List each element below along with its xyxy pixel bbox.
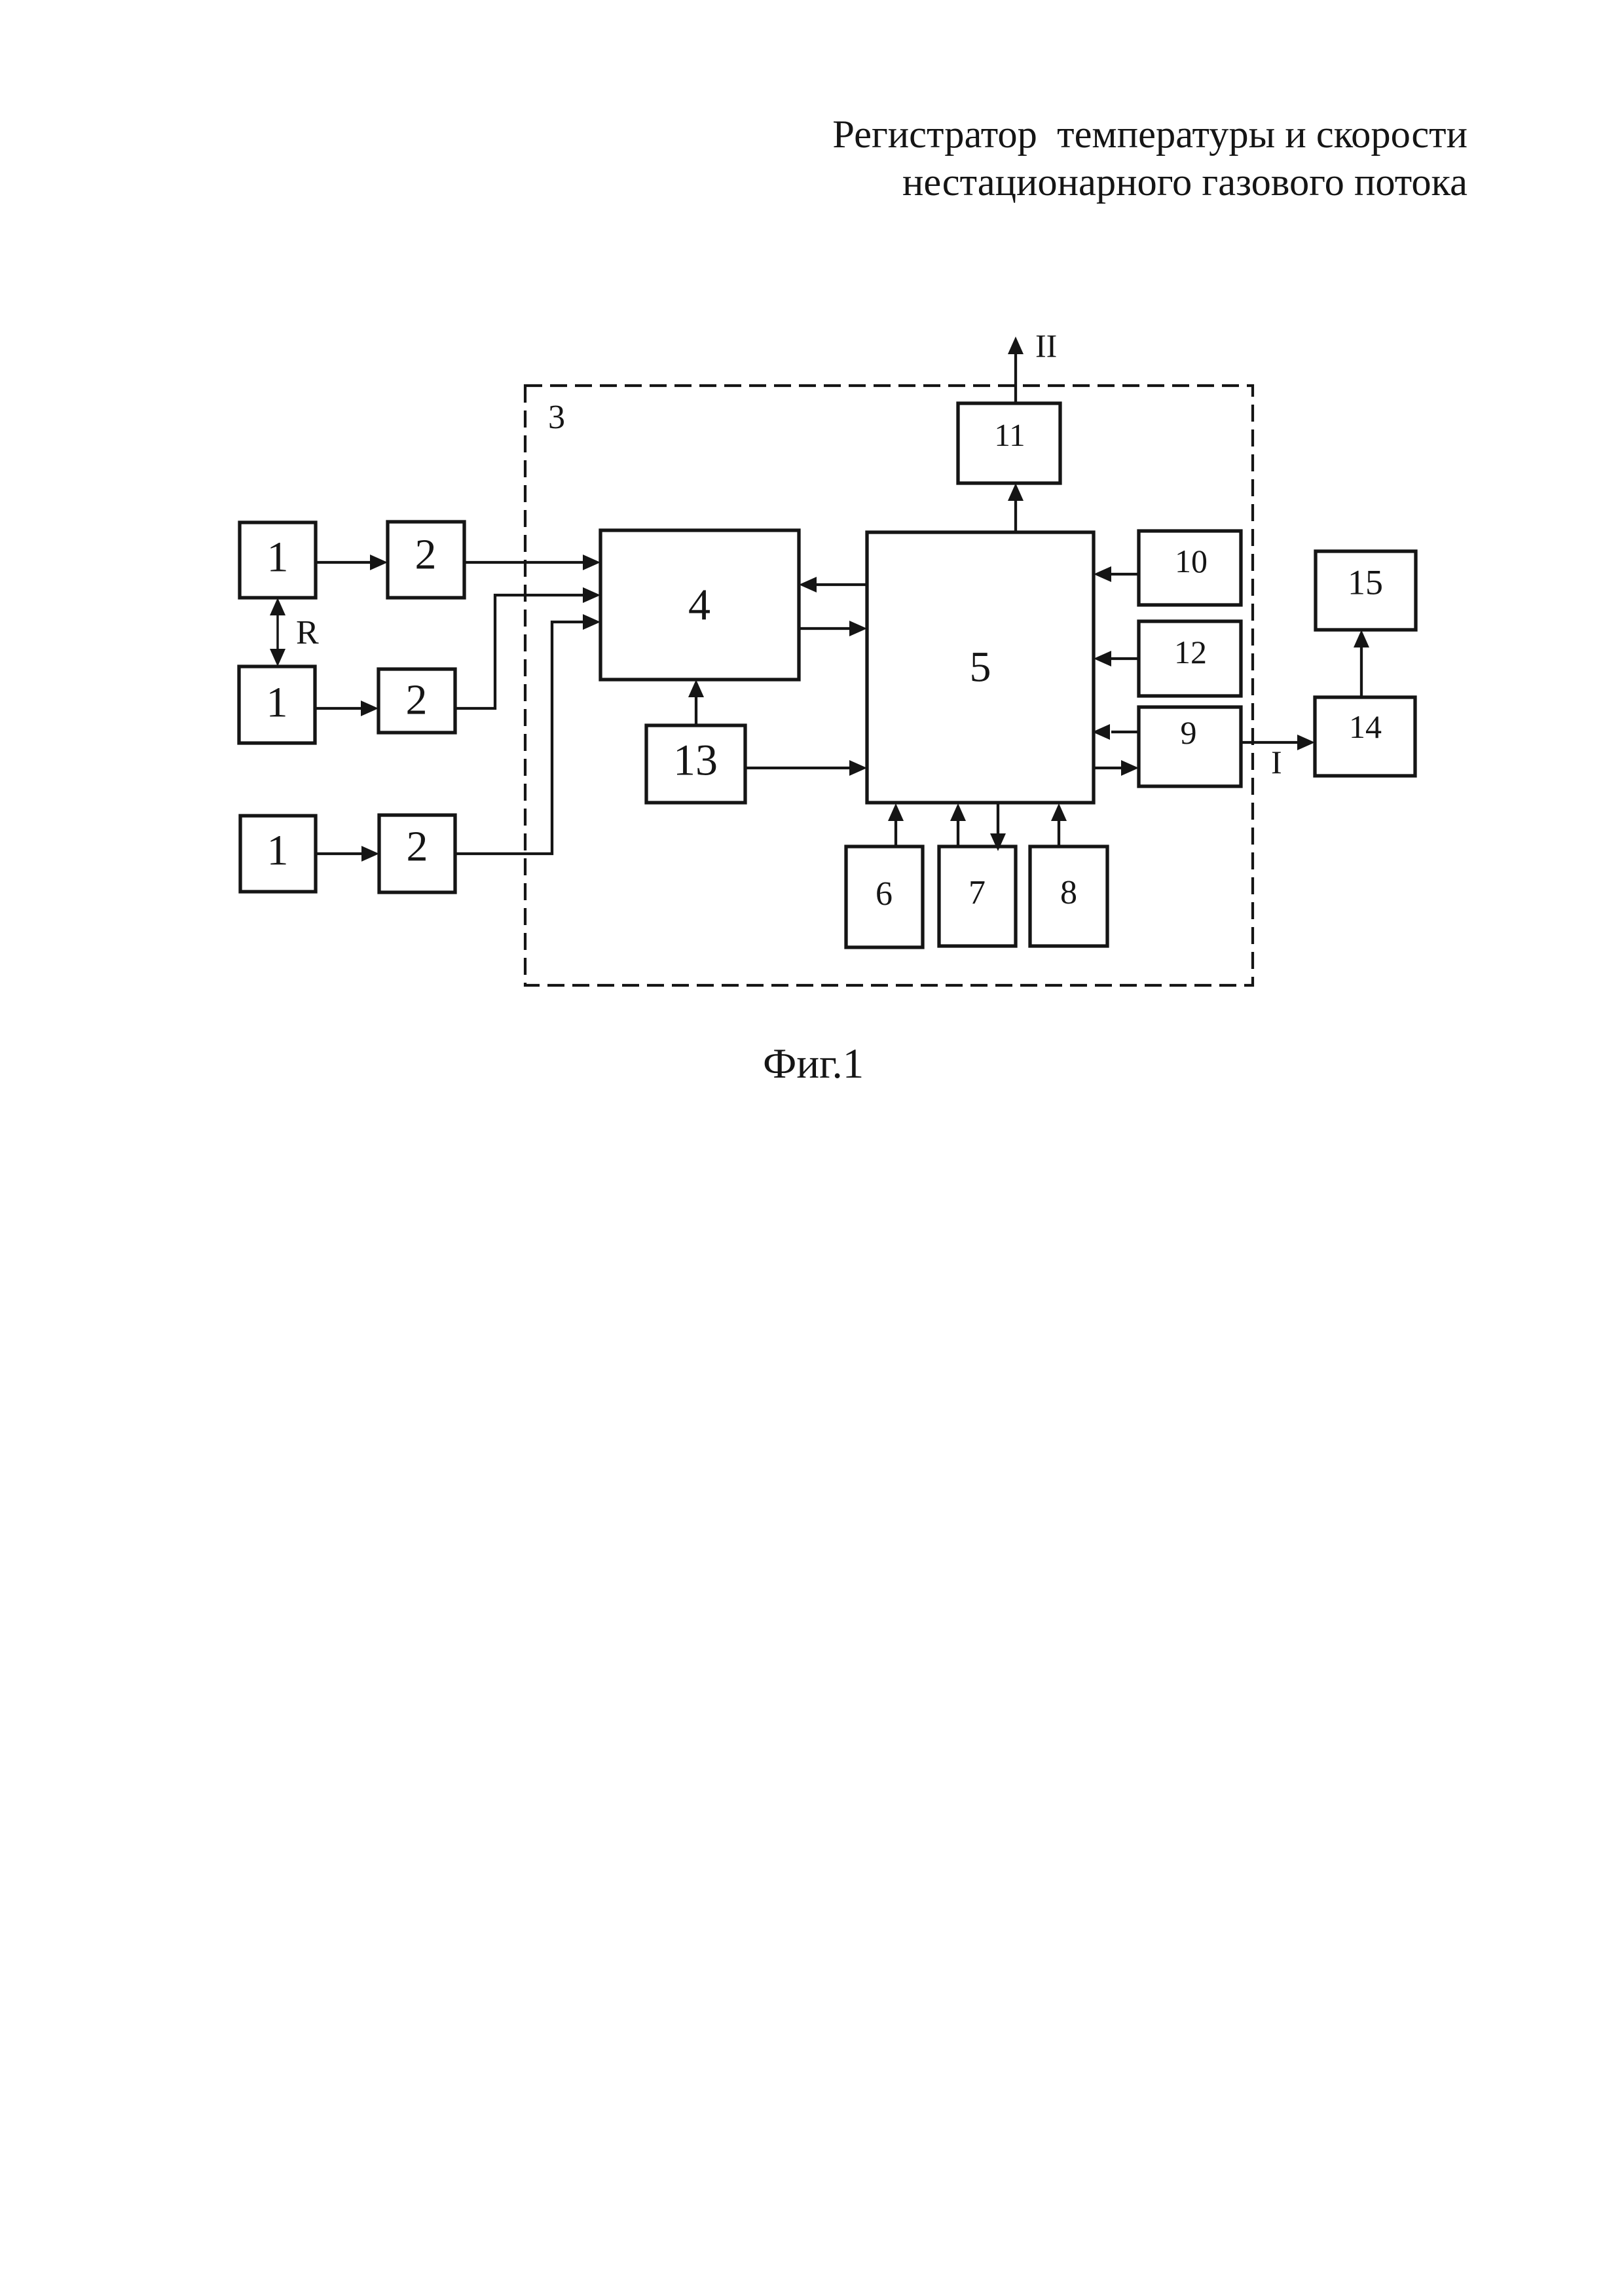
- svg-text:1: 1: [267, 534, 289, 581]
- svg-text:8: 8: [1060, 874, 1077, 911]
- svg-text:10: 10: [1175, 543, 1208, 579]
- svg-text:1: 1: [267, 827, 289, 875]
- svg-text:2: 2: [406, 676, 428, 724]
- svg-text:11: 11: [994, 417, 1025, 453]
- svg-text:2: 2: [415, 531, 437, 579]
- svg-text:12: 12: [1174, 634, 1207, 670]
- svg-text:5: 5: [970, 644, 991, 691]
- svg-text:I: I: [1271, 744, 1282, 780]
- svg-text:15: 15: [1348, 563, 1383, 602]
- svg-text:9: 9: [1181, 714, 1197, 751]
- svg-text:7: 7: [969, 874, 986, 911]
- svg-text:R: R: [296, 614, 319, 651]
- svg-text:Фиг.1: Фиг.1: [763, 1040, 864, 1087]
- svg-text:13: 13: [673, 735, 718, 784]
- svg-text:2: 2: [407, 823, 428, 871]
- svg-text:6: 6: [876, 875, 893, 913]
- svg-text:нестационарного газового поток: нестационарного газового потока: [902, 160, 1467, 204]
- svg-text:14: 14: [1349, 708, 1382, 745]
- svg-text:1: 1: [267, 679, 288, 727]
- svg-text:3: 3: [548, 399, 565, 436]
- svg-text:Регистратор температуры и ско: Регистратор температуры и скорости: [832, 113, 1467, 156]
- svg-text:4: 4: [688, 579, 710, 629]
- svg-text:II: II: [1035, 327, 1057, 364]
